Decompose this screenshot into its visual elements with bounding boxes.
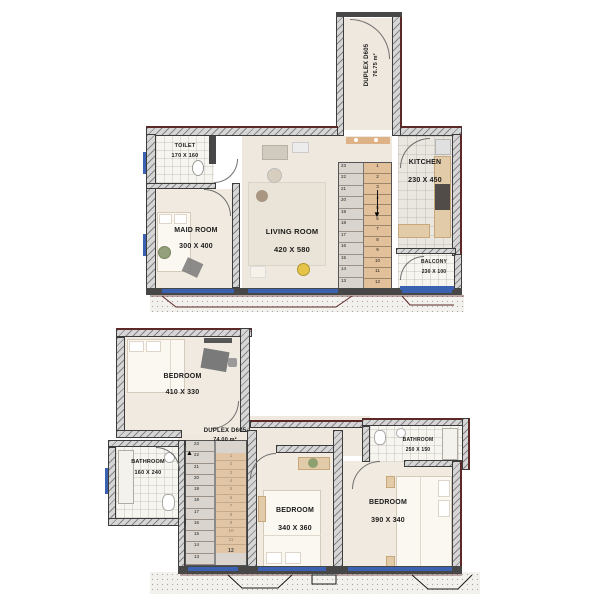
ground-texture-lower: [150, 572, 480, 594]
wall: [452, 461, 462, 571]
stair-step: 1: [216, 453, 246, 461]
stair-step: 19: [186, 486, 214, 497]
window-band: [188, 567, 238, 571]
room-dims: 390 X 340: [343, 516, 433, 527]
stair-step: 23: [339, 163, 363, 174]
stair-step: 9: [216, 520, 246, 528]
wall: [116, 337, 125, 436]
stair-rail: [214, 441, 216, 565]
room-dims: 300 X 400: [156, 242, 236, 253]
wall: [392, 14, 402, 136]
room-dims: 170 X 160: [156, 152, 214, 160]
unit-label-upper: DUPLEX D605 76.75 m²: [363, 29, 389, 101]
toilet-fixture: [192, 160, 204, 176]
stair-landing-number: 12: [216, 548, 246, 556]
room-label: BEDROOM: [257, 506, 333, 517]
stair-step: 8: [216, 512, 246, 520]
nightstand: [386, 476, 395, 488]
stair-step: 13: [186, 554, 214, 565]
room-label: TOILET: [156, 142, 214, 150]
stair-step: 20: [339, 197, 363, 208]
stair-step: 18: [186, 497, 214, 508]
unit-area-text: 76.75 m²: [372, 29, 380, 101]
room-label: BALCONY: [412, 259, 456, 267]
stair-step: 21: [339, 186, 363, 197]
pillow: [285, 552, 301, 564]
room-label: BATHROOM: [116, 458, 180, 466]
wall: [333, 430, 343, 570]
window-band: [258, 567, 326, 571]
round-table: [267, 168, 282, 183]
stair-step: 18: [339, 220, 363, 231]
stair-step: 16: [186, 520, 214, 531]
wall: [250, 420, 370, 428]
stair-step: 19: [339, 209, 363, 220]
room-dims: 160 X 240: [116, 469, 180, 477]
kitchen-counter: [398, 224, 430, 238]
wall: [108, 518, 186, 526]
room-dims: 250 X 150: [380, 447, 456, 455]
window-band: [143, 152, 146, 174]
stair-step: 5: [216, 486, 246, 494]
desk: [200, 348, 229, 372]
floor-plan-page: DUPLEX D605 76.75 m² 2322212019181716151…: [0, 0, 600, 600]
toilet-door-arc: [214, 159, 238, 183]
stair-step: 11: [364, 268, 391, 279]
room-dims: 340 X 360: [257, 524, 333, 535]
room-label: MAID ROOM: [156, 226, 236, 237]
stair-step: 7: [216, 503, 246, 511]
stove: [435, 184, 450, 210]
stair-step: 9: [364, 247, 391, 258]
chair: [228, 358, 237, 367]
window-band: [248, 289, 338, 293]
light-dot: [374, 138, 378, 142]
stair-step: 20: [186, 475, 214, 486]
wall: [247, 430, 257, 568]
stair-divider: [363, 163, 364, 289]
room-dims: 230 X 450: [398, 176, 452, 187]
room-label: BEDROOM: [125, 372, 240, 383]
wall: [336, 12, 402, 17]
pillow: [438, 500, 450, 517]
pouf: [297, 263, 310, 276]
stair-flight-under: 1234567891011: [216, 453, 246, 545]
wall: [362, 426, 370, 462]
stair-step: 15: [186, 531, 214, 542]
wall: [452, 134, 462, 256]
stair-step: 4: [216, 478, 246, 486]
stair-step: 11: [216, 537, 246, 545]
stair-step: 1: [364, 163, 391, 174]
wall: [396, 248, 456, 254]
pillow: [438, 480, 450, 497]
toilet-fixture: [162, 494, 175, 511]
stair-flight-lower: 123456789101112: [364, 163, 391, 289]
stair-step: 17: [339, 232, 363, 243]
room-label: BATHROOM: [380, 437, 456, 445]
stair-step: 15: [339, 255, 363, 266]
stair-step: 6: [216, 495, 246, 503]
window-band: [105, 468, 108, 494]
stair-up-arrow-icon: ▲: [186, 450, 196, 460]
unit-id-text: DUPLEX D605: [185, 427, 265, 436]
stair-flight-upper: 2322212019181716151413: [339, 163, 363, 289]
stair-step: 10: [364, 258, 391, 269]
chair: [250, 266, 266, 278]
wall: [146, 126, 338, 136]
stair-step: 2: [364, 174, 391, 185]
stair-step: 2: [216, 461, 246, 469]
pillow: [266, 552, 282, 564]
plant: [308, 458, 318, 468]
side-table: [256, 190, 268, 202]
cabinet: [292, 142, 309, 153]
window-band: [400, 286, 454, 290]
fridge: [435, 139, 451, 155]
stair-step: 8: [364, 237, 391, 248]
wall: [108, 440, 186, 447]
blanket-line: [263, 535, 321, 536]
window-band: [162, 289, 234, 293]
stair-step: 14: [339, 266, 363, 277]
stair-step: 3: [216, 470, 246, 478]
room-label: BEDROOM: [343, 498, 433, 509]
stair-step: 7: [364, 226, 391, 237]
wall: [336, 14, 344, 136]
stair-step: 16: [339, 243, 363, 254]
wall: [462, 418, 470, 470]
wall: [362, 418, 470, 426]
room-label: KITCHEN: [398, 158, 452, 169]
blanket-line: [170, 339, 171, 393]
wall: [108, 447, 116, 526]
pillow: [129, 341, 144, 352]
room-label: LIVING ROOM: [242, 226, 342, 237]
window-band: [348, 567, 452, 571]
stair-step: 10: [216, 528, 246, 536]
unit-id-text: DUPLEX D605: [363, 29, 372, 101]
wall: [116, 328, 252, 337]
light-dot: [354, 138, 358, 142]
ac-unit: [204, 338, 232, 343]
stair-step: 22: [339, 174, 363, 185]
stair-step: 21: [186, 464, 214, 475]
stair-step: 17: [186, 509, 214, 520]
wall: [240, 328, 250, 432]
window-band: [143, 234, 146, 256]
unit-area-text: 74.00 m²: [185, 436, 265, 444]
pillow: [159, 214, 172, 224]
room-dims: 230 X 100: [412, 269, 456, 277]
sofa: [262, 145, 288, 160]
counter-light-bar: [346, 137, 390, 144]
room-dims: 420 X 580: [242, 244, 342, 255]
pillow: [146, 341, 161, 352]
pillow: [174, 214, 187, 224]
wall: [146, 134, 156, 292]
ground-texture-upper: [150, 294, 464, 312]
stair-step: 14: [186, 542, 214, 553]
room-dims: 410 X 330: [125, 388, 240, 399]
stair-down-arrow-icon: ▼: [371, 211, 383, 221]
wall: [116, 430, 182, 438]
